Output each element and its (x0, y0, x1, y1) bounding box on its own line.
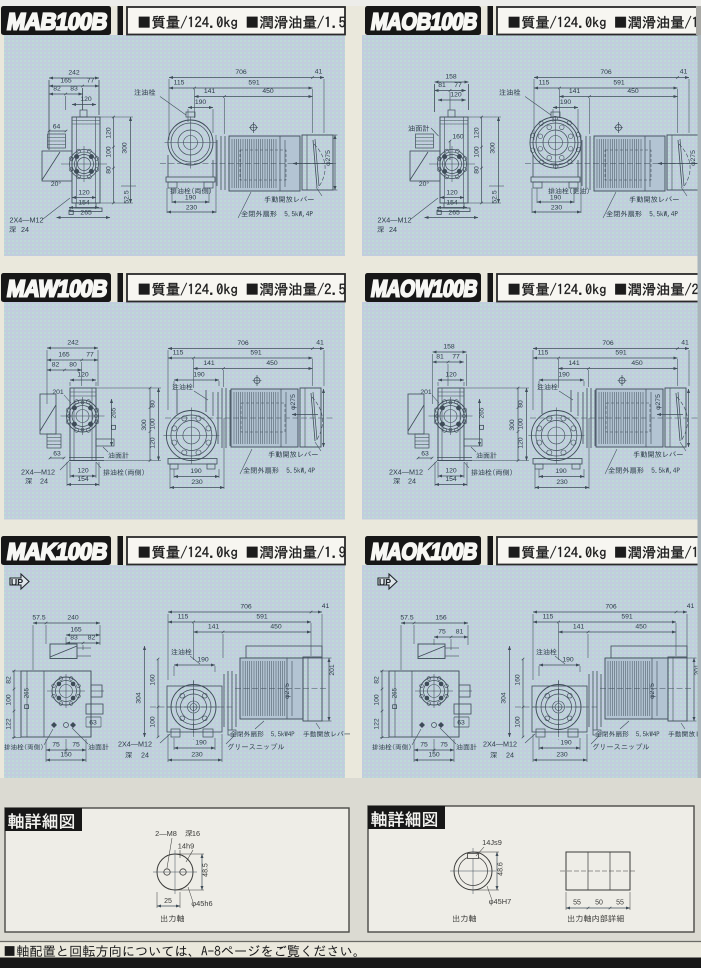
svg-text:230: 230 (556, 479, 568, 486)
svg-text:82: 82 (53, 86, 61, 93)
svg-text:25: 25 (164, 898, 172, 905)
svg-text:230: 230 (551, 205, 563, 212)
svg-text:591: 591 (248, 80, 260, 87)
svg-text:120: 120 (445, 468, 457, 475)
svg-text:52.5: 52.5 (124, 190, 131, 203)
svg-text:82: 82 (6, 676, 13, 684)
svg-text:2X4—M12: 2X4—M12 (378, 216, 412, 225)
svg-text:190: 190 (195, 99, 207, 106)
svg-text:230: 230 (191, 752, 203, 759)
svg-text:120: 120 (446, 190, 458, 197)
svg-text:141: 141 (573, 624, 585, 631)
svg-text:63: 63 (421, 451, 429, 458)
svg-text:160: 160 (515, 674, 522, 686)
svg-text:158: 158 (445, 74, 457, 81)
svg-text:201: 201 (420, 389, 432, 396)
svg-text:122: 122 (6, 718, 13, 730)
svg-text:41: 41 (680, 69, 688, 76)
svg-text:41: 41 (316, 340, 324, 347)
svg-text:81: 81 (438, 82, 446, 89)
svg-text:100: 100 (150, 716, 157, 728)
svg-text:41: 41 (315, 69, 323, 76)
svg-text:20°: 20° (51, 180, 62, 188)
svg-text:41: 41 (322, 603, 330, 610)
svg-text:80: 80 (69, 362, 77, 369)
svg-text:2X4—M12: 2X4—M12 (10, 216, 44, 225)
svg-text:120: 120 (77, 372, 89, 379)
svg-text:230: 230 (556, 752, 568, 759)
svg-text:591: 591 (250, 350, 262, 357)
svg-text:41: 41 (681, 340, 689, 347)
svg-text:φ45h6: φ45h6 (191, 899, 212, 908)
svg-text:77: 77 (86, 352, 94, 359)
svg-text:24: 24 (40, 477, 48, 486)
svg-text:190: 190 (560, 740, 572, 747)
svg-text:300: 300 (509, 419, 516, 431)
svg-text:591: 591 (621, 614, 633, 621)
svg-text:82: 82 (374, 676, 381, 684)
svg-text:55: 55 (616, 900, 624, 907)
svg-text:φ275: φ275 (284, 683, 291, 699)
svg-text:77: 77 (452, 354, 460, 361)
svg-text:190: 190 (185, 195, 197, 202)
svg-text:190: 190 (550, 195, 562, 202)
svg-text:77: 77 (87, 78, 95, 85)
svg-text:75: 75 (440, 742, 448, 749)
svg-text:63: 63 (457, 720, 465, 727)
svg-text:2X4—M12: 2X4—M12 (118, 740, 152, 749)
svg-text:57.5: 57.5 (32, 615, 45, 622)
svg-text:156: 156 (435, 615, 447, 622)
svg-text:14Js9: 14Js9 (482, 838, 502, 847)
svg-text:150: 150 (428, 752, 440, 759)
svg-text:MAK100B: MAK100B (5, 540, 109, 566)
svg-text:190: 190 (560, 99, 572, 106)
svg-text:120: 120 (150, 437, 157, 449)
svg-text:2X4—M12: 2X4—M12 (21, 468, 55, 477)
svg-text:265: 265 (448, 210, 460, 217)
svg-text:115: 115 (178, 614, 189, 621)
svg-text:80: 80 (474, 166, 481, 174)
svg-text:63: 63 (89, 720, 97, 727)
svg-text:141: 141 (204, 88, 216, 95)
svg-text:706: 706 (240, 604, 252, 611)
svg-text:265: 265 (24, 687, 31, 698)
svg-text:450: 450 (635, 624, 647, 631)
svg-text:MAOB100B: MAOB100B (369, 10, 479, 36)
svg-text:115: 115 (174, 80, 185, 87)
svg-text:83: 83 (70, 635, 78, 642)
svg-text:190: 190 (558, 372, 570, 379)
svg-text:24: 24 (389, 225, 397, 234)
svg-text:2—M8: 2—M8 (155, 829, 177, 838)
svg-text:UP: UP (11, 578, 23, 588)
svg-text:265: 265 (111, 407, 118, 418)
svg-text:122: 122 (374, 718, 381, 730)
svg-text:48.5: 48.5 (203, 863, 210, 877)
svg-text:100: 100 (374, 694, 381, 706)
svg-text:φ45H7: φ45H7 (489, 897, 511, 906)
svg-text:201: 201 (52, 389, 64, 396)
svg-text:265: 265 (479, 407, 486, 418)
svg-text:14h9: 14h9 (178, 842, 194, 851)
svg-text:41: 41 (687, 603, 695, 610)
svg-text:48.6: 48.6 (498, 862, 505, 876)
svg-text:120: 120 (518, 437, 525, 449)
svg-text:120: 120 (77, 468, 89, 475)
svg-text:115: 115 (539, 80, 550, 87)
svg-text:82: 82 (88, 635, 96, 642)
svg-text:115: 115 (543, 614, 554, 621)
svg-text:80: 80 (150, 400, 157, 408)
svg-text:154: 154 (446, 200, 458, 207)
svg-text:165: 165 (60, 78, 72, 85)
svg-text:MAOK100B: MAOK100B (369, 540, 479, 566)
svg-text:52.5: 52.5 (492, 190, 499, 203)
svg-text:706: 706 (237, 340, 249, 347)
svg-text:83: 83 (70, 86, 78, 93)
svg-text:115: 115 (538, 350, 549, 357)
svg-text:57.5: 57.5 (400, 615, 413, 622)
svg-text:242: 242 (67, 340, 79, 347)
svg-text:100: 100 (515, 716, 522, 728)
svg-text:64: 64 (53, 124, 61, 131)
svg-text:141: 141 (569, 88, 581, 95)
svg-text:240: 240 (67, 615, 79, 622)
svg-text:141: 141 (203, 360, 215, 367)
svg-text:265: 265 (80, 210, 92, 217)
svg-text:450: 450 (266, 360, 278, 367)
svg-text:165: 165 (58, 352, 70, 359)
svg-text:591: 591 (613, 80, 625, 87)
svg-text:20°: 20° (419, 180, 430, 188)
svg-text:201: 201 (329, 664, 336, 676)
svg-text:190: 190 (562, 657, 574, 664)
svg-text:450: 450 (262, 88, 274, 95)
svg-text:706: 706 (235, 69, 247, 76)
svg-text:80: 80 (518, 400, 525, 408)
svg-text:160: 160 (150, 674, 157, 686)
svg-text:75: 75 (72, 742, 80, 749)
svg-text:300: 300 (122, 142, 129, 154)
svg-text:154: 154 (78, 200, 90, 207)
svg-text:80: 80 (106, 166, 113, 174)
svg-text:24: 24 (408, 477, 416, 486)
svg-text:81: 81 (436, 354, 444, 361)
svg-text:120: 120 (450, 92, 462, 99)
svg-text:75: 75 (52, 742, 60, 749)
svg-text:300: 300 (141, 419, 148, 431)
svg-text:75: 75 (420, 742, 428, 749)
svg-text:190: 190 (555, 468, 567, 475)
svg-text:82: 82 (52, 362, 60, 369)
svg-text:154: 154 (445, 476, 457, 483)
svg-text:55: 55 (573, 900, 581, 907)
svg-text:706: 706 (605, 604, 617, 611)
svg-text:706: 706 (602, 340, 614, 347)
svg-text:φ275: φ275 (649, 683, 656, 699)
svg-text:φ275: φ275 (655, 394, 662, 410)
svg-text:120: 120 (106, 127, 113, 139)
svg-text:242: 242 (68, 70, 80, 77)
svg-text:UP: UP (379, 578, 391, 588)
svg-text:141: 141 (568, 360, 580, 367)
svg-text:115: 115 (173, 350, 184, 357)
svg-text:190: 190 (193, 372, 205, 379)
svg-text:450: 450 (631, 360, 643, 367)
svg-text:120: 120 (474, 127, 481, 139)
svg-text:230: 230 (191, 479, 203, 486)
svg-text:450: 450 (270, 624, 282, 631)
svg-text:100: 100 (106, 146, 113, 158)
svg-text:φ275: φ275 (290, 394, 297, 410)
svg-text:16: 16 (192, 829, 200, 838)
svg-text:300: 300 (490, 142, 497, 154)
svg-text:230: 230 (186, 205, 198, 212)
svg-text:450: 450 (627, 88, 639, 95)
svg-text:154: 154 (77, 476, 89, 483)
svg-text:165: 165 (70, 627, 82, 634)
svg-text:50: 50 (595, 900, 603, 907)
svg-text:141: 141 (208, 624, 220, 631)
svg-text:190: 190 (190, 468, 202, 475)
svg-text:120: 120 (78, 190, 90, 197)
svg-text:150: 150 (60, 752, 72, 759)
svg-text:MAB100B: MAB100B (5, 10, 109, 36)
svg-text:MAOW100B: MAOW100B (369, 277, 479, 303)
svg-text:265: 265 (392, 687, 399, 698)
svg-text:120: 120 (80, 96, 92, 103)
svg-text:100: 100 (474, 146, 481, 158)
svg-text:158: 158 (443, 344, 455, 351)
svg-text:304: 304 (501, 692, 508, 704)
svg-text:24: 24 (21, 225, 29, 234)
svg-text:2X4—M12: 2X4—M12 (389, 468, 423, 477)
svg-text:77: 77 (454, 82, 462, 89)
svg-text:75: 75 (438, 629, 446, 636)
svg-text:160: 160 (452, 134, 464, 141)
svg-text:63: 63 (53, 451, 61, 458)
svg-text:100: 100 (6, 694, 13, 706)
svg-text:2X4—M12: 2X4—M12 (483, 740, 517, 749)
svg-text:190: 190 (195, 740, 207, 747)
svg-text:304: 304 (136, 692, 143, 704)
svg-text:81: 81 (456, 629, 464, 636)
svg-text:591: 591 (256, 614, 268, 621)
svg-text:100: 100 (150, 418, 157, 430)
svg-text:120: 120 (445, 372, 457, 379)
svg-text:591: 591 (615, 350, 627, 357)
svg-text:190: 190 (197, 657, 209, 664)
svg-text:24: 24 (506, 751, 514, 760)
svg-text:706: 706 (600, 69, 612, 76)
svg-text:100: 100 (518, 418, 525, 430)
svg-text:MAW100B: MAW100B (5, 277, 109, 303)
svg-text:24: 24 (141, 751, 149, 760)
